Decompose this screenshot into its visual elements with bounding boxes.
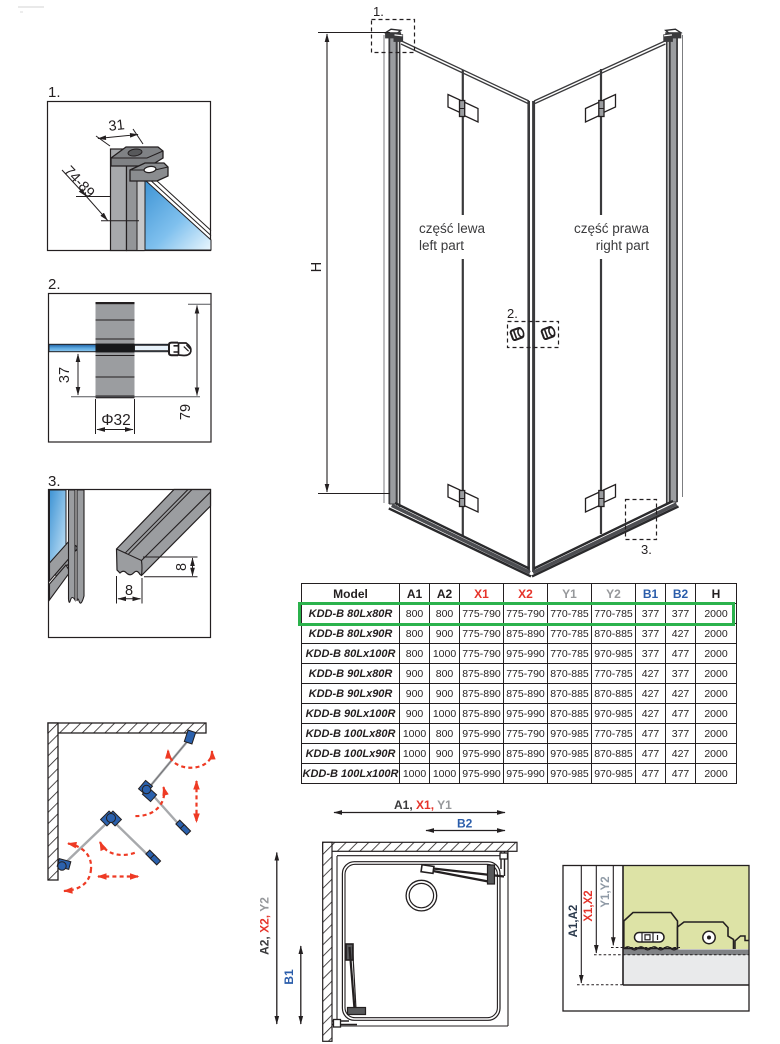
svg-text:31: 31 — [108, 117, 126, 135]
svg-text:A1,A2: A1,A2 — [568, 905, 580, 938]
svg-text:3.: 3. — [641, 542, 652, 557]
svg-text:2.: 2. — [507, 306, 518, 321]
svg-text:część prawa: część prawa — [574, 221, 650, 236]
svg-text:37: 37 — [57, 367, 73, 383]
svg-text:A1, X1, Y1: A1, X1, Y1 — [394, 798, 452, 812]
svg-text:X1,X2: X1,X2 — [583, 890, 595, 921]
svg-text:left part: left part — [419, 238, 464, 253]
svg-text:2.: 2. — [48, 276, 61, 293]
svg-text:Φ32: Φ32 — [101, 412, 131, 429]
svg-text:74-89: 74-89 — [60, 163, 97, 201]
svg-text:right part: right part — [596, 238, 650, 253]
svg-text:1.: 1. — [373, 4, 384, 19]
svg-text:część lewa: część lewa — [419, 221, 486, 236]
svg-text:79: 79 — [178, 404, 194, 420]
svg-text:H: H — [309, 262, 325, 272]
svg-text:8: 8 — [125, 583, 133, 599]
svg-text:1.: 1. — [48, 84, 61, 101]
svg-text:B1: B1 — [282, 969, 296, 985]
svg-text:Y1,Y2: Y1,Y2 — [600, 876, 612, 907]
svg-text:A2, X2, Y2: A2, X2, Y2 — [258, 897, 272, 955]
svg-text:3.: 3. — [48, 473, 61, 490]
svg-text:B2: B2 — [457, 817, 473, 831]
svg-text:8: 8 — [174, 563, 190, 571]
